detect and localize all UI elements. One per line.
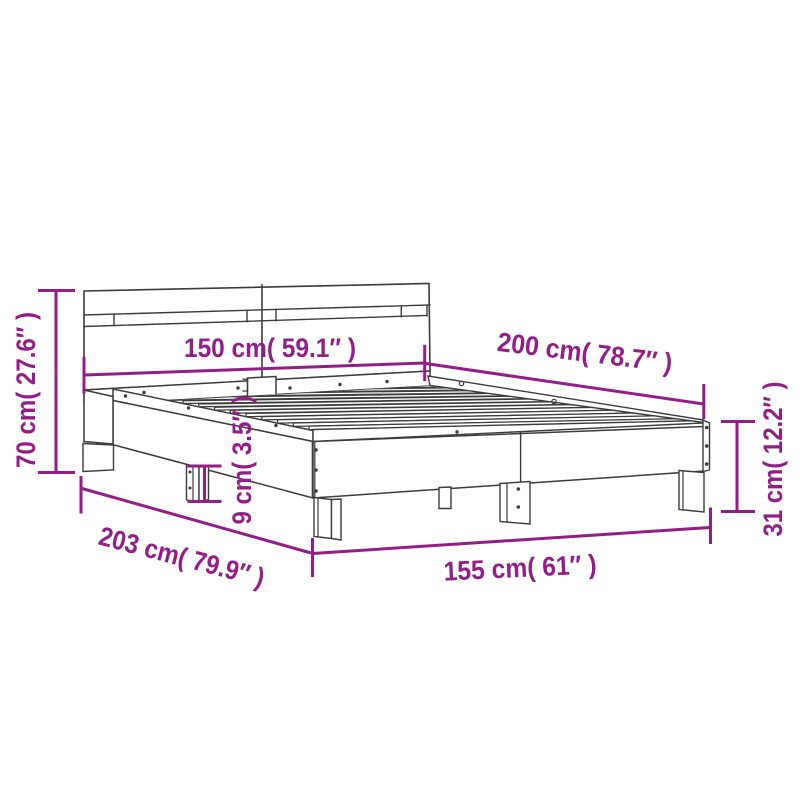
svg-text:9 cm( 3.5″ ): 9 cm( 3.5″ ) <box>227 396 257 525</box>
svg-text:150 cm( 59.1″ ): 150 cm( 59.1″ ) <box>184 333 356 363</box>
svg-text:70 cm( 27.6″ ): 70 cm( 27.6″ ) <box>11 312 41 468</box>
svg-text:31 cm( 12.2″ ): 31 cm( 12.2″ ) <box>758 382 788 537</box>
